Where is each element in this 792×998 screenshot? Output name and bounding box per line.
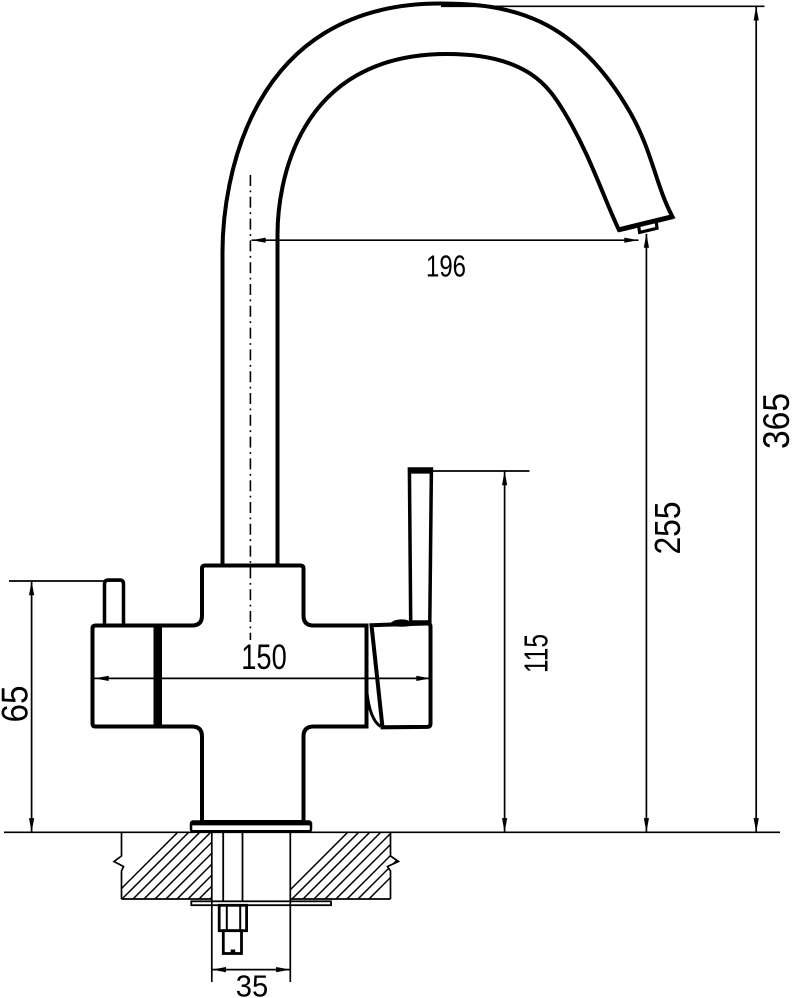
- svg-text:65: 65: [0, 686, 35, 723]
- svg-text:150: 150: [241, 637, 287, 677]
- svg-text:365: 365: [756, 393, 792, 449]
- svg-text:255: 255: [647, 502, 688, 555]
- svg-text:196: 196: [426, 248, 466, 283]
- svg-text:115: 115: [519, 634, 556, 673]
- svg-text:35: 35: [236, 969, 269, 998]
